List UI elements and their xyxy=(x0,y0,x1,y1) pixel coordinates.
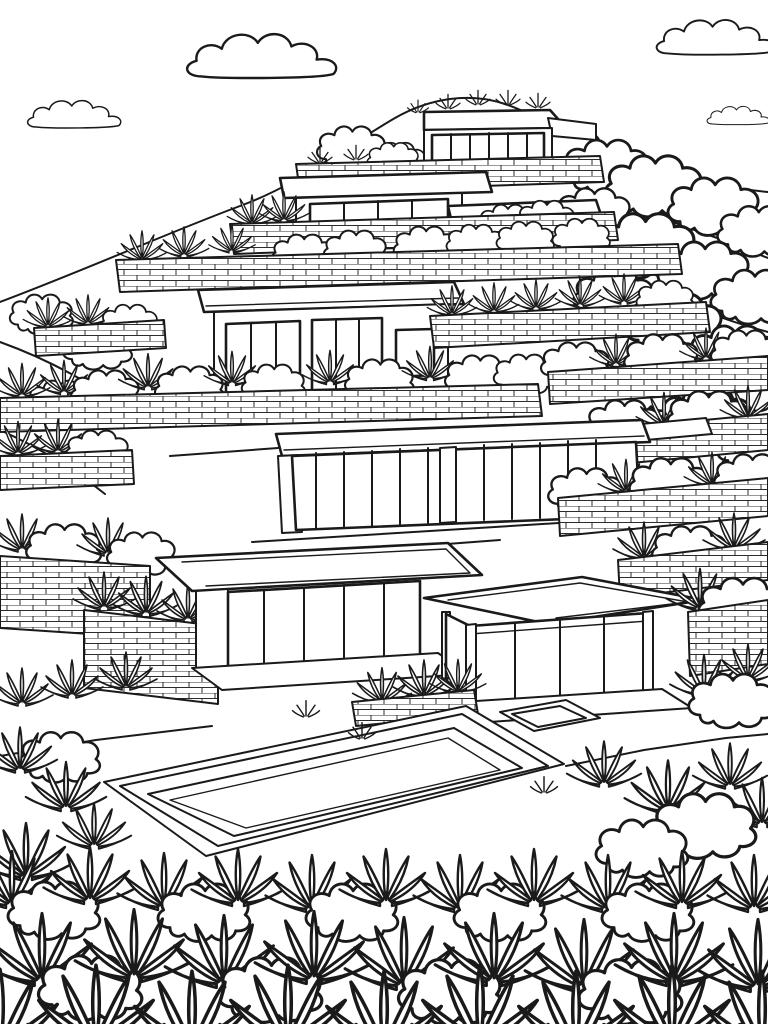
glass-house-divider xyxy=(440,447,456,523)
cloud xyxy=(187,34,336,78)
summit-roof-step xyxy=(548,118,596,140)
right-pavilion-right-post xyxy=(643,611,653,693)
coloring-page: Terraced hillside modern villas — colori… xyxy=(0,0,768,1024)
cloud xyxy=(707,106,768,124)
cloud xyxy=(28,101,121,128)
illustration-frame: Terraced hillside modern villas — colori… xyxy=(0,0,768,1024)
sky xyxy=(28,20,768,128)
pool-outer-rim xyxy=(104,706,564,856)
house-left-pavilion xyxy=(156,543,482,690)
left-pavilion-wall xyxy=(196,589,228,669)
line-art-scene: Terraced hillside modern villas — colori… xyxy=(0,0,768,1024)
summit-roof xyxy=(424,110,566,130)
cloud xyxy=(657,20,768,55)
pool xyxy=(104,706,564,856)
